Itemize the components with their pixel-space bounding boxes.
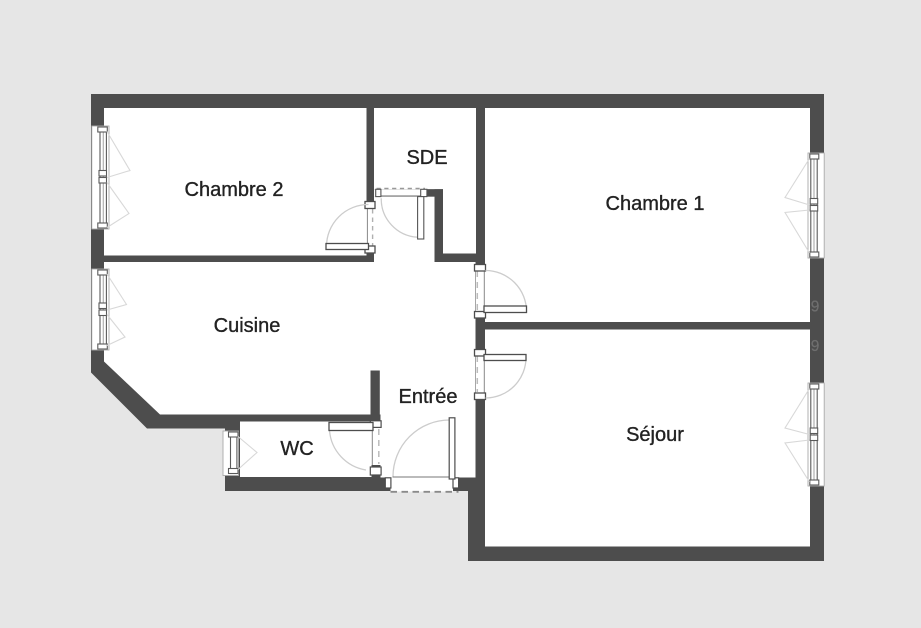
svg-text:Cuisine: Cuisine xyxy=(214,315,281,337)
svg-text:SDE: SDE xyxy=(406,147,447,169)
svg-text:9: 9 xyxy=(811,299,820,316)
svg-text:WC: WC xyxy=(280,438,313,460)
svg-text:Séjour: Séjour xyxy=(626,424,684,446)
svg-text:Chambre 2: Chambre 2 xyxy=(185,179,284,201)
svg-text:9: 9 xyxy=(811,338,820,355)
svg-text:Chambre 1: Chambre 1 xyxy=(606,193,705,215)
svg-text:Entrée: Entrée xyxy=(399,386,458,408)
